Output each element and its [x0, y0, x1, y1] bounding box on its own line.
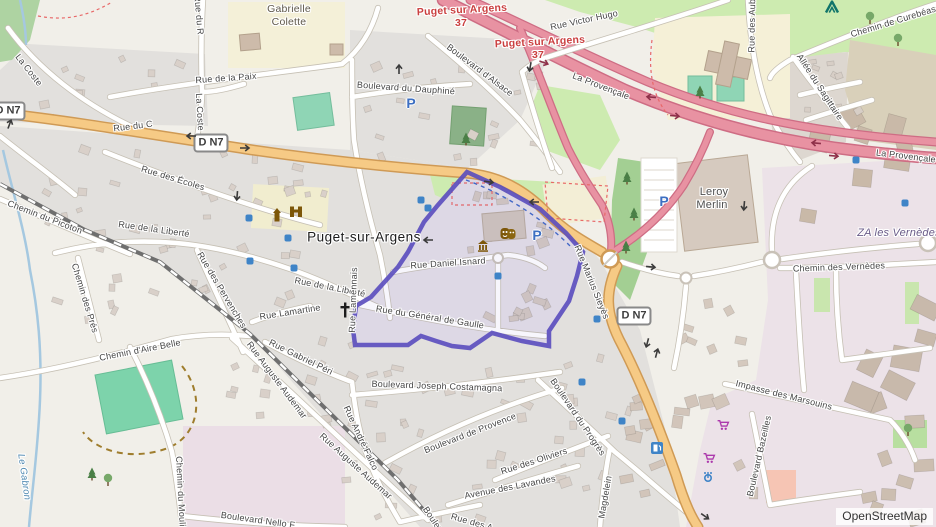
attribution: OpenStreetMap — [836, 508, 933, 525]
map-canvas — [0, 0, 936, 527]
leroy-merlin-building — [674, 155, 758, 251]
attribution-link[interactable]: OpenStreetMap — [842, 509, 927, 523]
map-viewport[interactable]: GabrielleColetteLa CosteRue du RLa Coste… — [0, 0, 936, 527]
school-building — [239, 33, 260, 51]
